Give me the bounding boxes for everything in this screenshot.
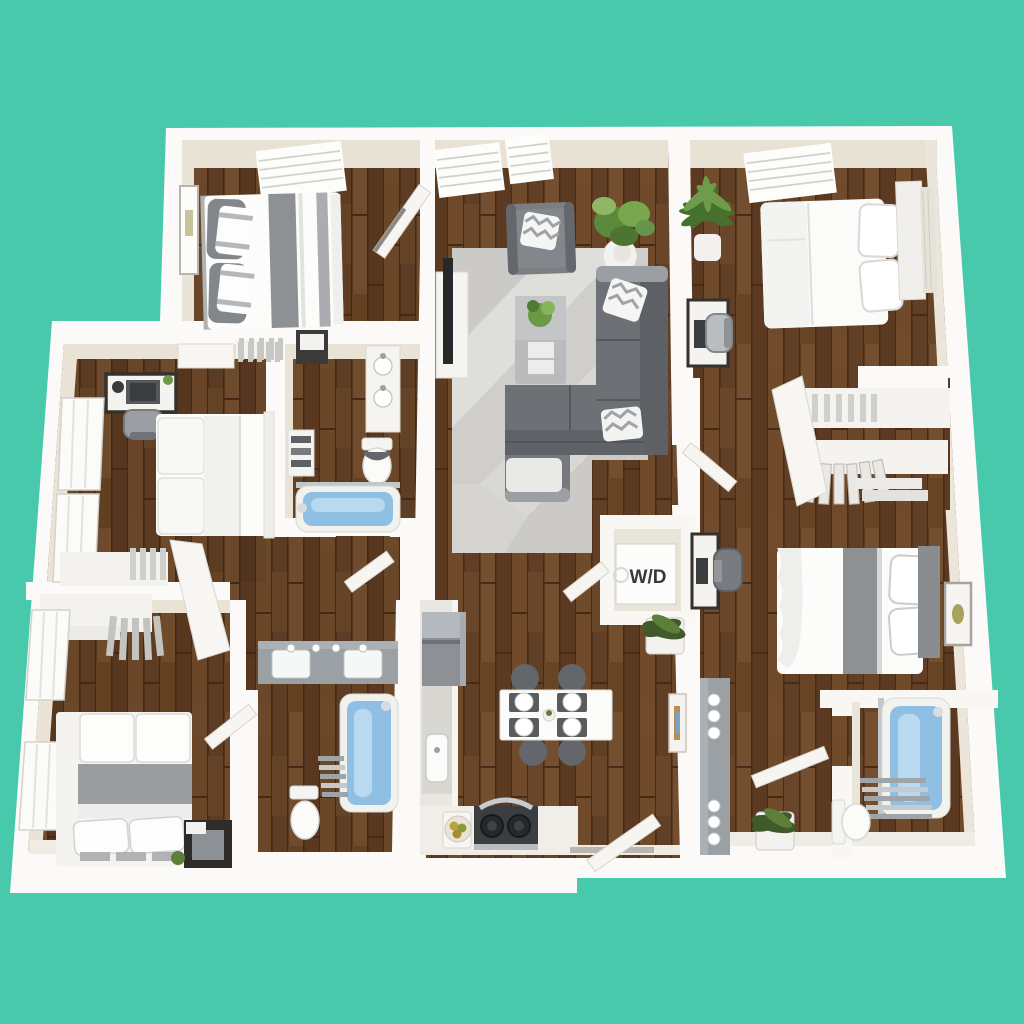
svg-text:W/D: W/D [630, 567, 667, 588]
